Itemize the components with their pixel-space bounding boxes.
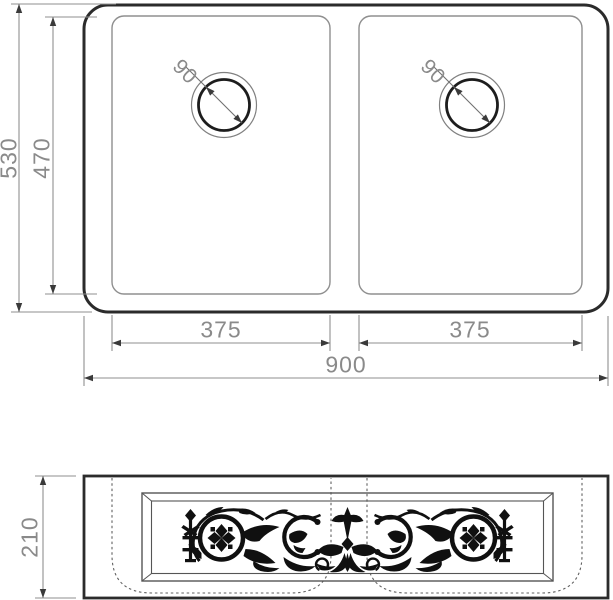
dim-label-530: 530 (0, 137, 21, 178)
sink-outline (84, 5, 608, 312)
left-bowl (112, 16, 330, 294)
dim-label-470: 470 (31, 137, 54, 178)
top-view (11, 4, 608, 386)
central-palmette (316, 507, 379, 572)
dim-label-210: 210 (19, 516, 42, 557)
sink-technical-drawing: 530 470 90 90 375 375 900 210 (0, 0, 613, 600)
dimension-530 (11, 4, 116, 312)
damask-ornament-icon (181, 507, 513, 572)
apron-outline (84, 476, 608, 598)
dim-label-375-left: 375 (200, 319, 241, 342)
right-bowl (359, 16, 582, 294)
dim-label-375-right: 375 (449, 319, 490, 342)
front-view (35, 476, 608, 598)
dim-label-900: 900 (325, 354, 366, 377)
drawing-linework (0, 0, 613, 600)
